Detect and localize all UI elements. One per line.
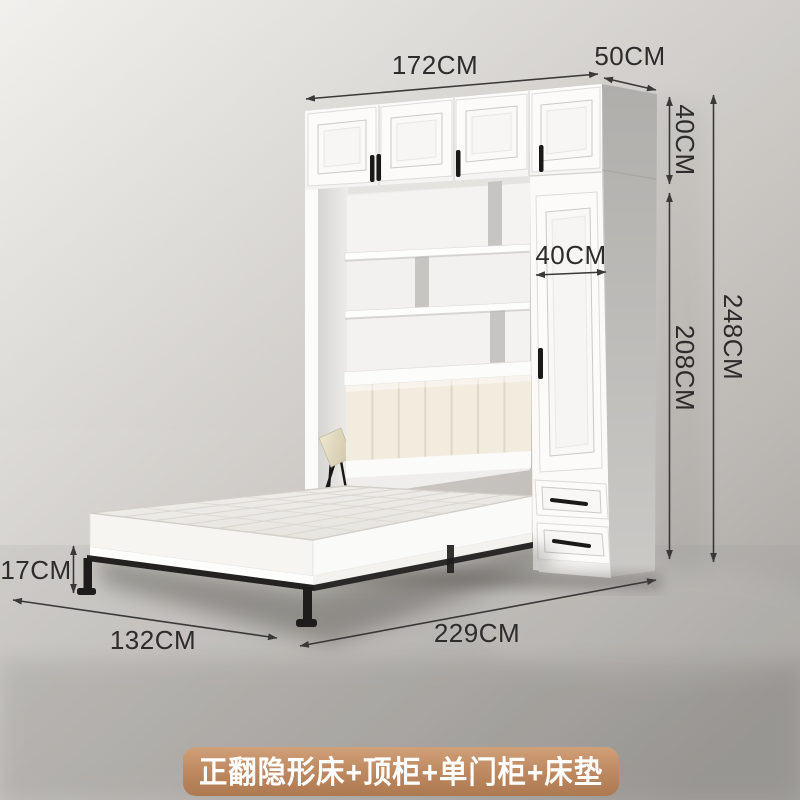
- single-door-cabinet: [530, 172, 611, 578]
- door-handle-icon: [377, 154, 382, 181]
- dim-label-cabinet-width: 40CM: [535, 240, 606, 270]
- top-cabinet-door-2: [381, 100, 452, 181]
- top-cabinet-door-3: [456, 94, 527, 175]
- shelf-divider: [415, 256, 429, 311]
- top-cabinet-door-1: [308, 107, 376, 186]
- single-cabinet-door: [536, 192, 602, 472]
- shelf-divider: [490, 304, 505, 366]
- product-dimension-image: 172CM 50CM 40CM 40CM 208CM 248CM 17CM 13…: [0, 0, 800, 800]
- dim-label-open-depth: 229CM: [434, 618, 520, 648]
- dim-label-top-width: 172CM: [392, 50, 478, 80]
- headboard: [344, 361, 531, 478]
- dim-label-lower-height: 208CM: [670, 325, 700, 411]
- door-handle-icon: [370, 155, 375, 182]
- shelf-divider: [488, 181, 502, 251]
- door-handle-icon: [538, 348, 543, 379]
- dim-label-bed-width: 132CM: [110, 625, 196, 655]
- door-handle-icon: [539, 145, 544, 172]
- cabinet-right-side-panel: [602, 84, 657, 577]
- caption-banner: 正翻隐形床+顶柜+单门柜+床垫: [183, 747, 619, 796]
- dim-label-top-depth: 50CM: [594, 41, 665, 71]
- bed-leg-middle: [447, 545, 454, 573]
- scene-canvas: 172CM 50CM 40CM 40CM 208CM 248CM 17CM 13…: [0, 0, 800, 800]
- caption-banner-text: 正翻隐形床+顶柜+单门柜+床垫: [199, 755, 603, 790]
- cabinet-left-wall: [305, 189, 318, 516]
- cabinet-drawer-1: [535, 480, 608, 519]
- dim-label-frame-height: 17CM: [0, 555, 71, 585]
- dim-label-top-cabinet-height: 40CM: [670, 104, 700, 175]
- door-handle-icon: [456, 150, 461, 177]
- dim-label-total-height: 248CM: [718, 294, 748, 380]
